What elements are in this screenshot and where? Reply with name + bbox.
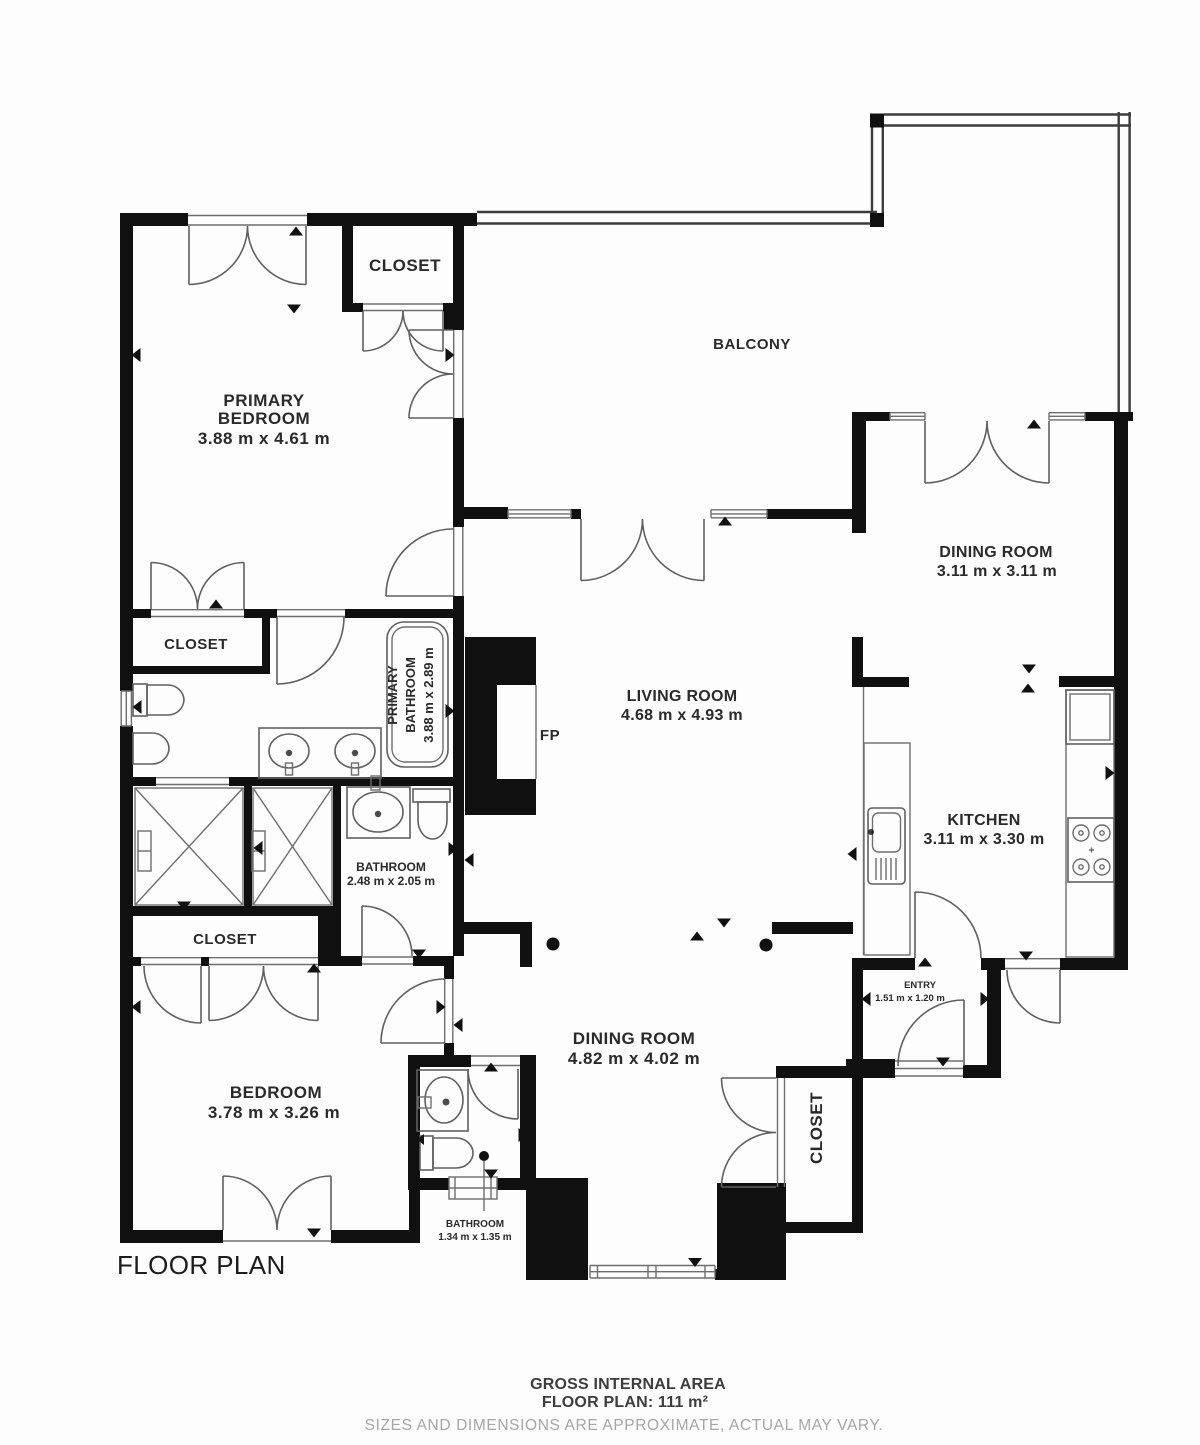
svg-text:BEDROOM: BEDROOM xyxy=(230,1083,322,1102)
svg-text:KITCHEN: KITCHEN xyxy=(947,812,1020,829)
svg-text:3.78 m x 3.26 m: 3.78 m x 3.26 m xyxy=(208,1103,340,1122)
svg-text:PRIMARY: PRIMARY xyxy=(385,665,400,725)
svg-text:1.34 m x 1.35 m: 1.34 m x 1.35 m xyxy=(438,1232,511,1243)
svg-text:DINING ROOM: DINING ROOM xyxy=(939,544,1053,561)
svg-text:BATHROOM: BATHROOM xyxy=(403,657,418,733)
svg-text:FLOOR PLAN: FLOOR PLAN xyxy=(117,1250,286,1280)
svg-text:1.51 m x 1.20 m: 1.51 m x 1.20 m xyxy=(875,993,945,1004)
svg-text:DINING ROOM: DINING ROOM xyxy=(573,1029,696,1048)
svg-text:4.82 m x 4.02 m: 4.82 m x 4.02 m xyxy=(568,1049,700,1068)
svg-text:BATHROOM: BATHROOM xyxy=(446,1219,504,1230)
svg-text:PRIMARY: PRIMARY xyxy=(223,391,304,410)
svg-text:CLOSET: CLOSET xyxy=(369,256,441,275)
svg-text:FP: FP xyxy=(540,727,560,744)
svg-text:CLOSET: CLOSET xyxy=(164,636,228,653)
svg-text:3.11 m x 3.30 m: 3.11 m x 3.30 m xyxy=(923,831,1044,848)
svg-text:3.11 m x 3.11 m: 3.11 m x 3.11 m xyxy=(937,563,1057,580)
svg-text:BEDROOM: BEDROOM xyxy=(218,409,310,428)
svg-text:SIZES AND DIMENSIONS ARE APPRO: SIZES AND DIMENSIONS ARE APPROXIMATE, AC… xyxy=(365,1417,884,1434)
svg-text:FLOOR PLAN: 111 m²: FLOOR PLAN: 111 m² xyxy=(542,1394,708,1411)
svg-text:2.48 m x 2.05 m: 2.48 m x 2.05 m xyxy=(347,874,435,888)
svg-text:4.68 m x 4.93 m: 4.68 m x 4.93 m xyxy=(621,707,743,724)
svg-text:BALCONY: BALCONY xyxy=(713,336,791,353)
svg-text:BATHROOM: BATHROOM xyxy=(356,860,426,874)
svg-text:LIVING ROOM: LIVING ROOM xyxy=(627,688,738,705)
svg-text:ENTRY: ENTRY xyxy=(904,980,937,991)
svg-text:3.88 m x 4.61 m: 3.88 m x 4.61 m xyxy=(198,429,330,448)
svg-text:3.88 m x 2.89 m: 3.88 m x 2.89 m xyxy=(421,647,436,742)
svg-text:GROSS INTERNAL AREA: GROSS INTERNAL AREA xyxy=(530,1376,726,1393)
svg-text:CLOSET: CLOSET xyxy=(193,931,257,948)
svg-text:CLOSET: CLOSET xyxy=(807,1092,826,1164)
